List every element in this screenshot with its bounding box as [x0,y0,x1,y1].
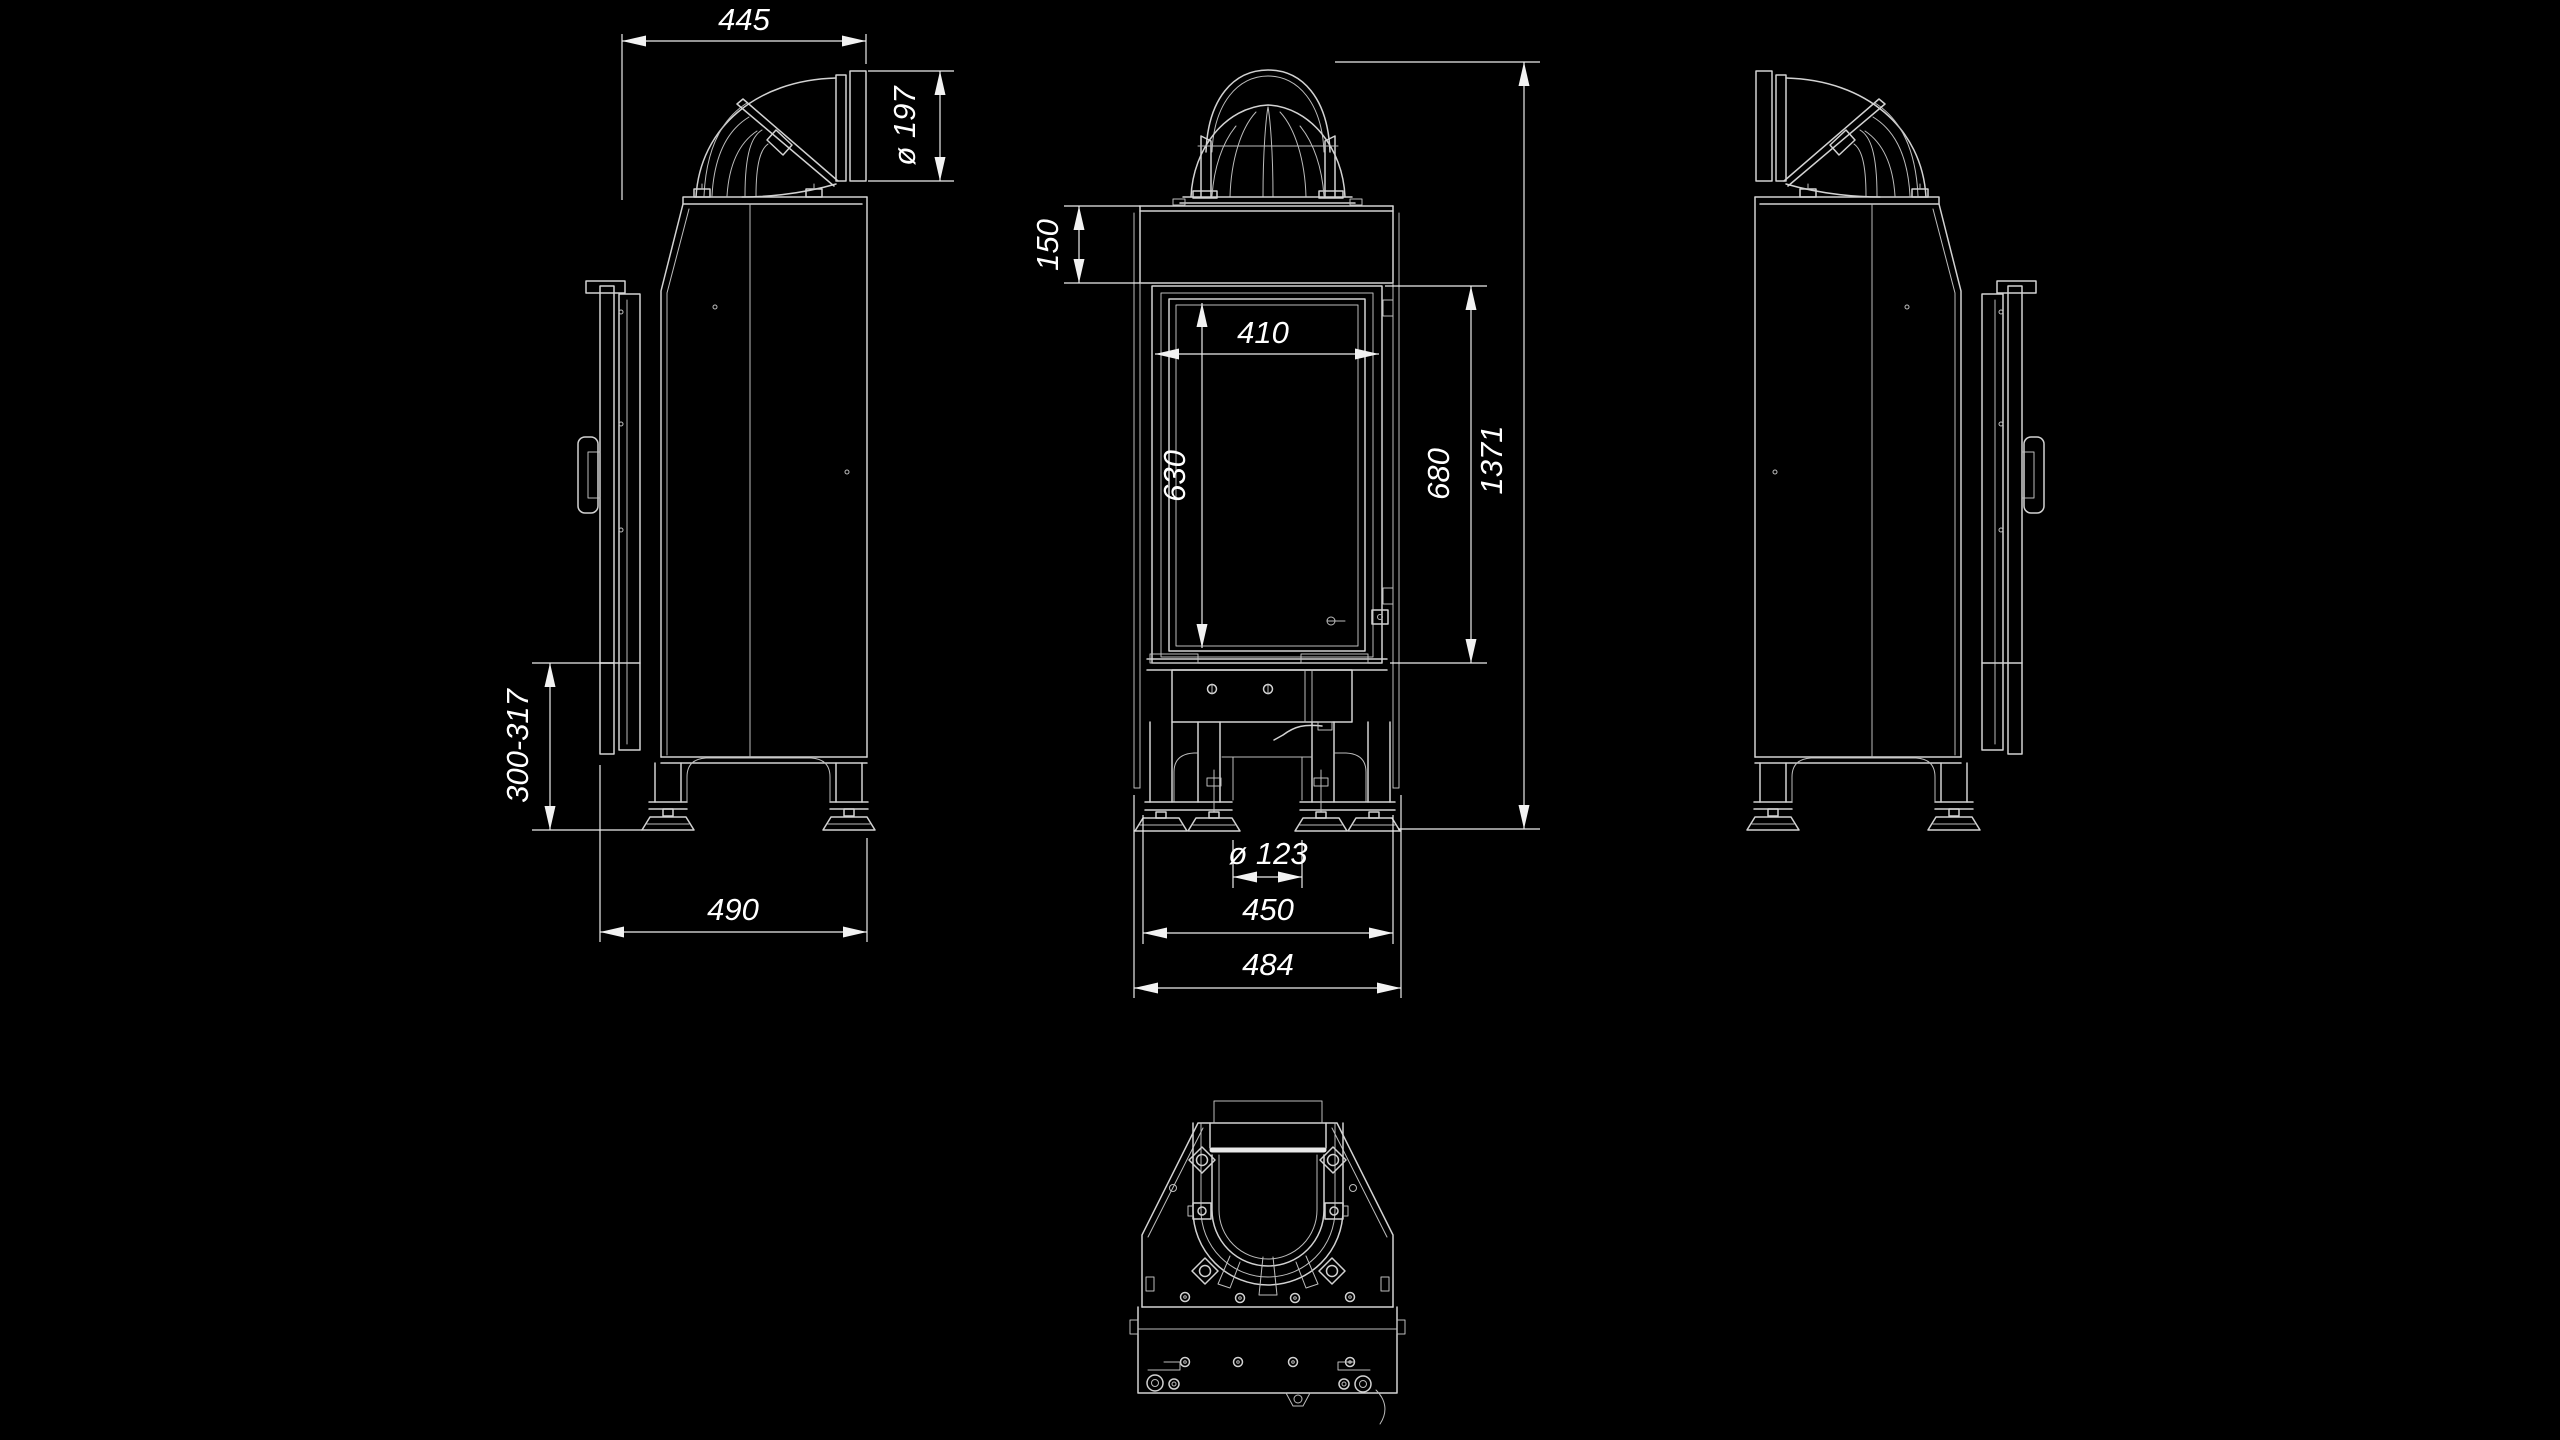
dim-label-300-317: 300-317 [500,687,535,803]
base-panel [1147,654,1387,740]
door-latch [1372,610,1388,624]
dim-adjustable-base-height: 300-317 [500,663,642,830]
view-side-left: 445 ø 197 300-317 490 [500,2,954,942]
dim-label-680: 680 [1421,448,1456,500]
view-side-right [1747,71,2044,830]
flue-cowl [1173,70,1362,205]
legs [1135,722,1400,831]
dim-glass-width: 410 [1155,315,1379,360]
dim-label-123: ø 123 [1228,836,1307,871]
dim-label-445: 445 [718,2,770,37]
dim-base-width: 450 [1143,815,1393,944]
air-control-lever [1274,725,1322,740]
dim-label-450: 450 [1242,892,1294,927]
dim-collar-band-height: 150 [1030,206,1140,283]
dim-label-484: 484 [1242,947,1294,982]
dim-label-410: 410 [1237,315,1289,350]
dim-door-height: 680 [1385,286,1487,663]
dim-depth: 490 [600,765,867,942]
flue-collar [1193,1101,1343,1285]
technical-drawing-canvas: 445 ø 197 300-317 490 [0,0,2560,1440]
dim-label-1371: 1371 [1474,426,1509,495]
dim-label-197: ø 197 [887,85,922,166]
dim-label-150: 150 [1030,219,1065,271]
dim-label-490: 490 [707,892,759,927]
dim-label-630: 630 [1157,450,1192,502]
dim-flue-top-width: 445 [622,2,866,200]
side-body-right [1747,71,2044,830]
view-front: 150 410 630 680 1371 [1030,62,1540,998]
dim-flue-diameter: ø 197 [868,71,954,181]
dim-air-inlet-diameter: ø 123 [1228,836,1307,888]
view-top [1130,1101,1405,1424]
